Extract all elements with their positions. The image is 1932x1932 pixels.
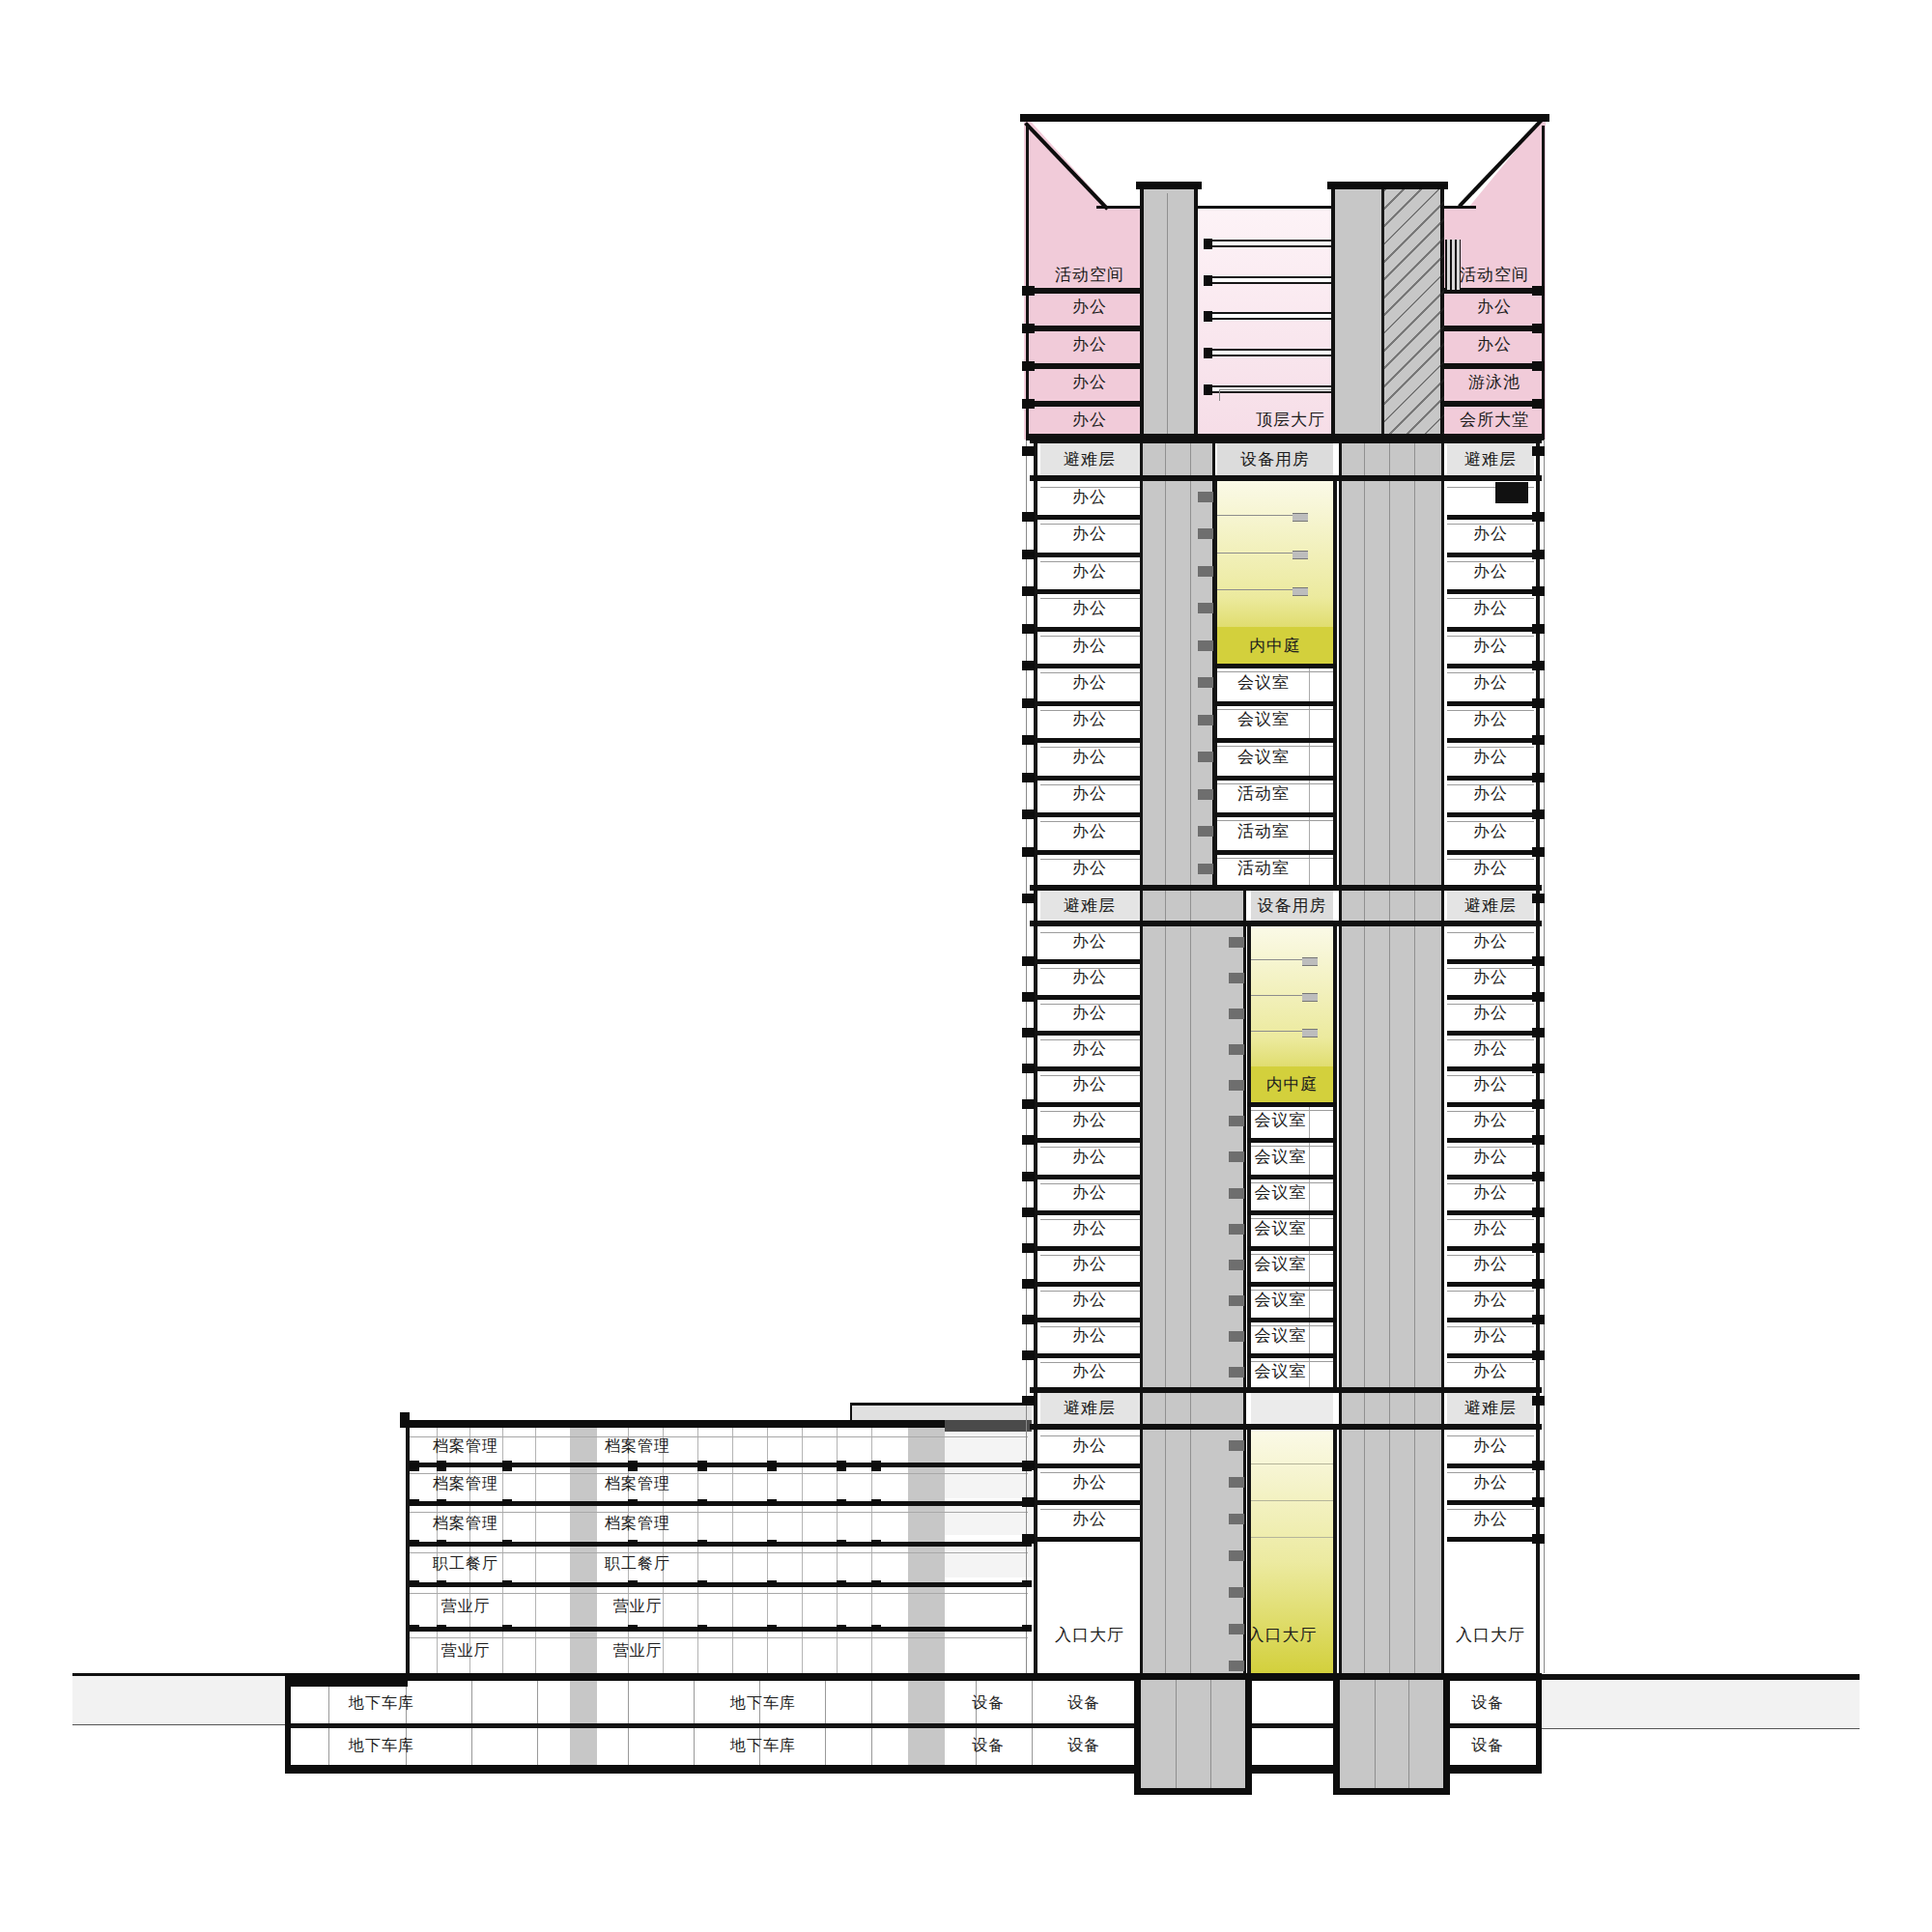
podium-row-label: 职工餐厅 — [379, 1552, 553, 1576]
core-mullion — [1389, 440, 1390, 1673]
floor-slab — [1030, 1175, 1140, 1179]
wall-tick — [1532, 1315, 1545, 1324]
floor-slab — [1247, 1318, 1337, 1322]
refuge-middle-void — [1251, 1389, 1333, 1427]
office-row-label: 办公 — [1003, 1470, 1177, 1493]
thin-line — [410, 1637, 1028, 1638]
beam-tick — [502, 1625, 512, 1632]
wall-tick — [1022, 1534, 1035, 1544]
floor-slab — [1447, 664, 1542, 668]
beam-tick — [697, 1625, 707, 1632]
floor-slab — [1030, 738, 1140, 743]
middle-room-label: 活动室 — [1177, 819, 1350, 842]
floor-slab — [1030, 401, 1140, 407]
wall-tick — [1022, 1099, 1035, 1109]
beam-tick — [628, 1580, 638, 1587]
floor-slab — [1447, 627, 1542, 632]
office-row-label: 办公 — [1003, 819, 1177, 842]
beam-tick — [410, 1499, 419, 1506]
office-row-label: 办公 — [1404, 1037, 1577, 1061]
podium-parapet — [400, 1412, 410, 1428]
beam-tick — [697, 1461, 707, 1467]
elevator-landing-mark — [1198, 492, 1213, 502]
elevator-landing-mark — [1229, 1661, 1244, 1671]
floor-slab — [1444, 363, 1542, 369]
wall-tick — [1022, 324, 1035, 333]
beam-tick — [871, 1580, 881, 1587]
floor-slab — [406, 1582, 1032, 1587]
beam-tick — [767, 1540, 777, 1547]
thin-line — [410, 1593, 1028, 1594]
office-row-label: 办公 — [1404, 745, 1577, 768]
crown-right-row-label: 办公 — [1407, 296, 1581, 319]
elevator-landing-mark — [1198, 528, 1213, 539]
louver-band — [945, 1543, 1032, 1577]
refuge-label: 避难层 — [1003, 894, 1177, 917]
beam-tick — [628, 1499, 638, 1506]
podium-row-label: 档案管理 — [551, 1435, 724, 1458]
crown-floor-cap — [1204, 348, 1212, 358]
floor-slab — [1030, 1500, 1140, 1505]
office-row-label: 办公 — [1404, 597, 1577, 620]
wall-tick — [1532, 810, 1545, 819]
podium-row-label: 职工餐厅 — [551, 1552, 724, 1576]
beam-tick — [437, 1499, 446, 1506]
thin-line — [1251, 1500, 1333, 1501]
floor-slab — [1247, 1175, 1337, 1179]
beam-tick — [837, 1540, 846, 1547]
office-row-label: 办公 — [1003, 1323, 1177, 1347]
refuge-label: 避难层 — [1404, 447, 1577, 470]
wall-tick — [1532, 847, 1545, 857]
podium-roof-slab — [406, 1420, 1032, 1428]
elevator-landing-mark — [1229, 1009, 1244, 1019]
floor-slab — [1447, 1246, 1542, 1251]
floor-slab — [1030, 776, 1140, 781]
beam-tick — [1022, 1580, 1032, 1587]
beam-tick — [767, 1461, 777, 1467]
podium-row-label: 档案管理 — [551, 1512, 724, 1535]
beam-tick — [871, 1499, 881, 1506]
wall-tick — [1532, 324, 1545, 333]
stair-wall — [1381, 189, 1384, 440]
wall-tick — [1022, 624, 1035, 634]
wall-tick — [1022, 1172, 1035, 1181]
office-row-label: 办公 — [1404, 1470, 1577, 1493]
floor-slab — [1247, 1102, 1337, 1107]
refuge-label: 避难层 — [1003, 1397, 1177, 1420]
beam-tick — [837, 1580, 846, 1587]
office-row-label: 办公 — [1003, 485, 1177, 508]
wall-tick — [1532, 1534, 1545, 1544]
wall-tick — [1532, 361, 1545, 371]
office-row-label: 办公 — [1404, 857, 1577, 880]
wall-tick — [1532, 1243, 1545, 1253]
office-row-label: 办公 — [1404, 1507, 1577, 1530]
floor-slab — [1247, 1210, 1337, 1215]
basement-wall-right — [1536, 1673, 1542, 1774]
floor-slab — [1213, 850, 1337, 855]
thin-line — [1251, 959, 1310, 960]
floor-slab — [1447, 1031, 1542, 1036]
elevator-landing-mark — [1229, 1044, 1244, 1055]
beam-tick — [767, 1499, 777, 1506]
basement-middle-slab — [1252, 1723, 1333, 1728]
wall-tick — [1022, 1279, 1035, 1289]
office-row-label: 办公 — [1003, 1216, 1177, 1239]
elevator-landing-mark — [1229, 1514, 1244, 1524]
entrance-hall-label: 入口大厅 — [1404, 1623, 1577, 1646]
elevator-landing-mark — [1229, 937, 1244, 948]
atrium-step — [1302, 993, 1318, 1002]
office-row-label: 办公 — [1003, 1434, 1177, 1457]
office-row-label: 办公 — [1003, 782, 1177, 806]
crown-left-row-label: 办公 — [1003, 333, 1177, 356]
wall-tick — [1022, 773, 1035, 782]
floor-slab — [1030, 438, 1542, 443]
floor-slab — [1447, 701, 1542, 706]
floor-slab — [1030, 850, 1140, 855]
floor-slab — [1030, 627, 1140, 632]
middle-room-label: 会议室 — [1194, 1359, 1368, 1382]
wall-tick — [1022, 1064, 1035, 1073]
wall-tick — [1022, 586, 1035, 596]
atrium-step — [1293, 513, 1308, 522]
elevator-landing-mark — [1229, 1080, 1244, 1091]
office-row-label: 办公 — [1003, 559, 1177, 582]
beam-tick — [437, 1540, 446, 1547]
basement-room-label: 地下车库 — [295, 1734, 469, 1757]
wall-tick — [1022, 735, 1035, 745]
office-row-label: 办公 — [1404, 671, 1577, 695]
wall-tick — [1022, 698, 1035, 708]
floor-slab — [1447, 589, 1542, 594]
floor-slab — [1444, 401, 1542, 407]
wall-tick — [1022, 810, 1035, 819]
office-row-label: 办公 — [1404, 1359, 1577, 1382]
beam-tick — [410, 1540, 419, 1547]
wall-tick — [1532, 1099, 1545, 1109]
floor-slab — [1030, 1066, 1140, 1071]
wall-tick — [1022, 361, 1035, 371]
office-row-label: 办公 — [1003, 1073, 1177, 1096]
wall-tick — [1022, 1461, 1035, 1470]
wall-tick — [1532, 1028, 1545, 1037]
crown-floor-cap — [1204, 384, 1212, 395]
beam-tick — [502, 1499, 512, 1506]
beam-tick — [628, 1625, 638, 1632]
elevator-landing-mark — [1229, 973, 1244, 983]
beam-tick — [410, 1625, 419, 1632]
crown-left-row-label: 活动空间 — [1003, 263, 1177, 286]
wall-tick — [1532, 286, 1545, 296]
beam-tick — [437, 1625, 446, 1632]
wall-tick — [1022, 847, 1035, 857]
floor-slab — [1447, 1066, 1542, 1071]
atrium-label-row: 内中庭 — [1251, 1066, 1333, 1102]
beam-tick — [502, 1580, 512, 1587]
wall-tick — [1022, 1350, 1035, 1360]
floor-slab — [1030, 1210, 1140, 1215]
middle-room-label: 会议室 — [1194, 1288, 1368, 1311]
office-row-label: 办公 — [1404, 1434, 1577, 1457]
middle-room-label: 会议室 — [1177, 671, 1350, 695]
wall-tick — [1022, 1135, 1035, 1145]
thin-line — [1217, 553, 1300, 554]
floor-slab — [1247, 1282, 1337, 1287]
crown-left-row-label: 办公 — [1003, 408, 1177, 431]
atrium-step — [1302, 1029, 1318, 1037]
wall-tick — [1022, 1315, 1035, 1324]
wall-tick — [1532, 550, 1545, 559]
core-mullion — [1176, 1680, 1177, 1788]
office-row-label: 办公 — [1404, 634, 1577, 657]
core-mullion — [1210, 1680, 1211, 1788]
core-mullion — [1190, 440, 1191, 1673]
office-row-label: 办公 — [1404, 1323, 1577, 1347]
floor-slab — [406, 1627, 1032, 1632]
floor-slab — [1030, 363, 1140, 369]
elevator-landing-mark — [1229, 1477, 1244, 1488]
wall-tick — [1022, 1028, 1035, 1037]
floor-slab — [1447, 1500, 1542, 1505]
floor-slab — [1447, 1282, 1542, 1287]
office-row-label: 办公 — [1404, 1180, 1577, 1204]
entrance-hall-label: 入口大厅 — [1003, 1623, 1177, 1646]
office-row-label: 办公 — [1003, 523, 1177, 546]
office-row-label: 办公 — [1404, 819, 1577, 842]
equipment-room-label: 设备用房 — [1188, 447, 1362, 470]
floor-slab — [1030, 921, 1542, 926]
office-row-label: 办公 — [1404, 930, 1577, 953]
floor-slab — [1030, 1102, 1140, 1107]
atrium-step — [1302, 957, 1318, 966]
podium-wall-left — [406, 1420, 410, 1673]
floor-slab — [1213, 738, 1337, 743]
wall-tick — [1532, 1172, 1545, 1181]
atrium-step — [1293, 551, 1308, 559]
office-row-label: 办公 — [1003, 1507, 1177, 1530]
floor-slab — [406, 1501, 1032, 1506]
floor-slab — [1247, 1353, 1337, 1358]
middle-room-label: 会议室 — [1177, 745, 1350, 768]
office-row-label: 办公 — [1404, 1073, 1577, 1096]
middle-room-label: 会议室 — [1194, 1252, 1368, 1275]
earth-hatch-right — [1542, 1677, 1860, 1729]
office-row-label: 办公 — [1404, 1109, 1577, 1132]
floor-slab — [1030, 589, 1140, 594]
podium-row-label: 营业厅 — [551, 1639, 724, 1662]
middle-room-label: 活动室 — [1177, 857, 1350, 880]
office-row-label: 办公 — [1003, 708, 1177, 731]
thin-line — [1251, 1031, 1310, 1032]
office-row-label: 办公 — [1003, 930, 1177, 953]
thin-line — [1251, 1537, 1333, 1538]
wall-tick — [1532, 512, 1545, 522]
atrium-step — [1293, 587, 1308, 596]
wall-tick — [1532, 1279, 1545, 1289]
thin-line — [1217, 515, 1300, 516]
floor-slab — [1447, 776, 1542, 781]
wall-tick — [1532, 1350, 1545, 1360]
floor-slab — [1030, 1353, 1140, 1358]
basement-room-label: 地下车库 — [676, 1691, 850, 1715]
floor-slab — [1030, 1537, 1140, 1542]
wall-tick — [1022, 1243, 1035, 1253]
podium-row-label: 档案管理 — [551, 1472, 724, 1495]
basement-room-label: 设备 — [1401, 1691, 1575, 1715]
floor-slab — [1030, 812, 1140, 817]
basement-room-label: 地下车库 — [676, 1734, 850, 1757]
floor-slab — [1030, 515, 1140, 520]
wall-tick — [1022, 1207, 1035, 1217]
podium-row-label: 营业厅 — [551, 1595, 724, 1618]
beam-tick — [410, 1580, 419, 1587]
floor-slab — [1447, 1175, 1542, 1179]
beam-tick — [767, 1580, 777, 1587]
floor-slab — [1213, 776, 1337, 781]
floor-slab — [1213, 812, 1337, 817]
beam-tick — [871, 1625, 881, 1632]
crown-right-row-label: 活动空间 — [1407, 263, 1581, 286]
louver-cap — [945, 1420, 1032, 1432]
thin-line — [1217, 589, 1300, 590]
service-box — [1495, 482, 1528, 503]
beam-tick — [628, 1461, 638, 1467]
floor-slab — [1030, 475, 1542, 481]
middle-room-label: 会议室 — [1194, 1145, 1368, 1168]
floor-slab — [1447, 553, 1542, 557]
office-row-label: 办公 — [1404, 1145, 1577, 1168]
refuge-label: 避难层 — [1404, 894, 1577, 917]
office-row-label: 办公 — [1003, 1037, 1177, 1061]
podium-row-label: 档案管理 — [379, 1512, 553, 1535]
crown-right-row-label: 游泳池 — [1407, 371, 1581, 394]
thin-line — [1251, 995, 1310, 996]
office-row-label: 办公 — [1003, 1180, 1177, 1204]
middle-room-label: 会议室 — [1194, 1216, 1368, 1239]
floor-slab — [1447, 738, 1542, 743]
beam-tick — [837, 1499, 846, 1506]
floor-slab — [1030, 1246, 1140, 1251]
wall-tick — [1022, 956, 1035, 966]
floor-slab — [1030, 1387, 1542, 1393]
wall-tick — [1532, 1461, 1545, 1470]
floor-slab — [1447, 1537, 1542, 1542]
office-row-label: 办公 — [1003, 966, 1177, 989]
floor-slab — [406, 1463, 1032, 1467]
office-row-label: 办公 — [1003, 634, 1177, 657]
beam-tick — [837, 1625, 846, 1632]
right-core-cap — [1327, 182, 1448, 189]
office-row-label: 办公 — [1003, 1252, 1177, 1275]
elevator-landing-mark — [1229, 1440, 1244, 1451]
floor-slab — [1030, 701, 1140, 706]
earth-hatch-left — [72, 1673, 288, 1725]
floor-slab — [406, 1542, 1032, 1547]
floor-slab — [1213, 664, 1337, 668]
wall-tick — [1532, 1207, 1545, 1217]
floor-slab — [1447, 812, 1542, 817]
beam-tick — [837, 1461, 846, 1467]
office-row-label: 办公 — [1404, 708, 1577, 731]
floor-slab — [1030, 288, 1140, 294]
floor-slab — [1030, 995, 1140, 1000]
beam-tick — [410, 1461, 419, 1467]
crown-hall-label: 顶层大厅 — [1204, 408, 1378, 431]
wall-tick — [1022, 550, 1035, 559]
floor-slab — [1447, 1210, 1542, 1215]
office-row-label: 办公 — [1404, 782, 1577, 806]
crown-floor-cap — [1204, 239, 1212, 249]
wall-tick — [1532, 698, 1545, 708]
wall-tick — [1532, 1497, 1545, 1507]
crown-left-row-label: 办公 — [1003, 371, 1177, 394]
floor-slab — [1030, 1463, 1140, 1468]
floor-slab — [1447, 850, 1542, 855]
refuge-label: 避难层 — [1404, 1397, 1577, 1420]
elevator-landing-mark — [1198, 566, 1213, 577]
beam-tick — [697, 1540, 707, 1547]
office-row-label: 办公 — [1404, 1288, 1577, 1311]
podium-row-label: 营业厅 — [379, 1639, 553, 1662]
beam-tick — [697, 1580, 707, 1587]
wall-tick — [1532, 624, 1545, 634]
wall-tick — [1532, 992, 1545, 1002]
office-row-label: 办公 — [1003, 671, 1177, 695]
floor-slab — [1444, 326, 1542, 331]
floor-slab — [1447, 515, 1542, 520]
floor-slab — [1030, 326, 1140, 331]
atrium-label-row: 内中庭 — [1217, 627, 1333, 664]
floor-slab — [1447, 1318, 1542, 1322]
floor-slab — [1030, 553, 1140, 557]
beam-tick — [871, 1540, 881, 1547]
floor-slab — [1030, 664, 1140, 668]
basement-room-label: 设备 — [997, 1691, 1171, 1715]
crown-left-row-label: 办公 — [1003, 296, 1177, 319]
office-row-label: 办公 — [1003, 1145, 1177, 1168]
podium-row-label: 档案管理 — [379, 1472, 553, 1495]
office-row-label: 办公 — [1404, 1216, 1577, 1239]
office-row-label: 办公 — [1003, 1002, 1177, 1025]
beam-tick — [628, 1540, 638, 1547]
ground-cap — [288, 1673, 408, 1687]
basement-middle — [1252, 1681, 1333, 1753]
thin-line — [1251, 1463, 1333, 1464]
office-row-label: 办公 — [1003, 1109, 1177, 1132]
wall-tick — [1532, 773, 1545, 782]
floor-slab — [1447, 1463, 1542, 1468]
wall-tick — [1022, 512, 1035, 522]
floor-slab — [1030, 885, 1542, 891]
floor-slab — [1247, 1246, 1337, 1251]
elevator-landing-mark — [1229, 1587, 1244, 1598]
elevator-landing-mark — [1229, 1550, 1244, 1561]
wall-tick — [1532, 661, 1545, 670]
wall-tick — [1022, 992, 1035, 1002]
office-row-label: 办公 — [1404, 559, 1577, 582]
floor-slab — [1447, 995, 1542, 1000]
floor-slab — [1030, 1138, 1140, 1143]
ground-line-right — [1536, 1674, 1860, 1677]
middle-room-label: 会议室 — [1177, 708, 1350, 731]
elevator-landing-mark — [1198, 603, 1213, 613]
crown-right-row-label: 会所大堂 — [1407, 408, 1581, 431]
basement-room-label: 设备 — [997, 1734, 1171, 1757]
office-row-label: 办公 — [1003, 857, 1177, 880]
beam-tick — [437, 1461, 446, 1467]
